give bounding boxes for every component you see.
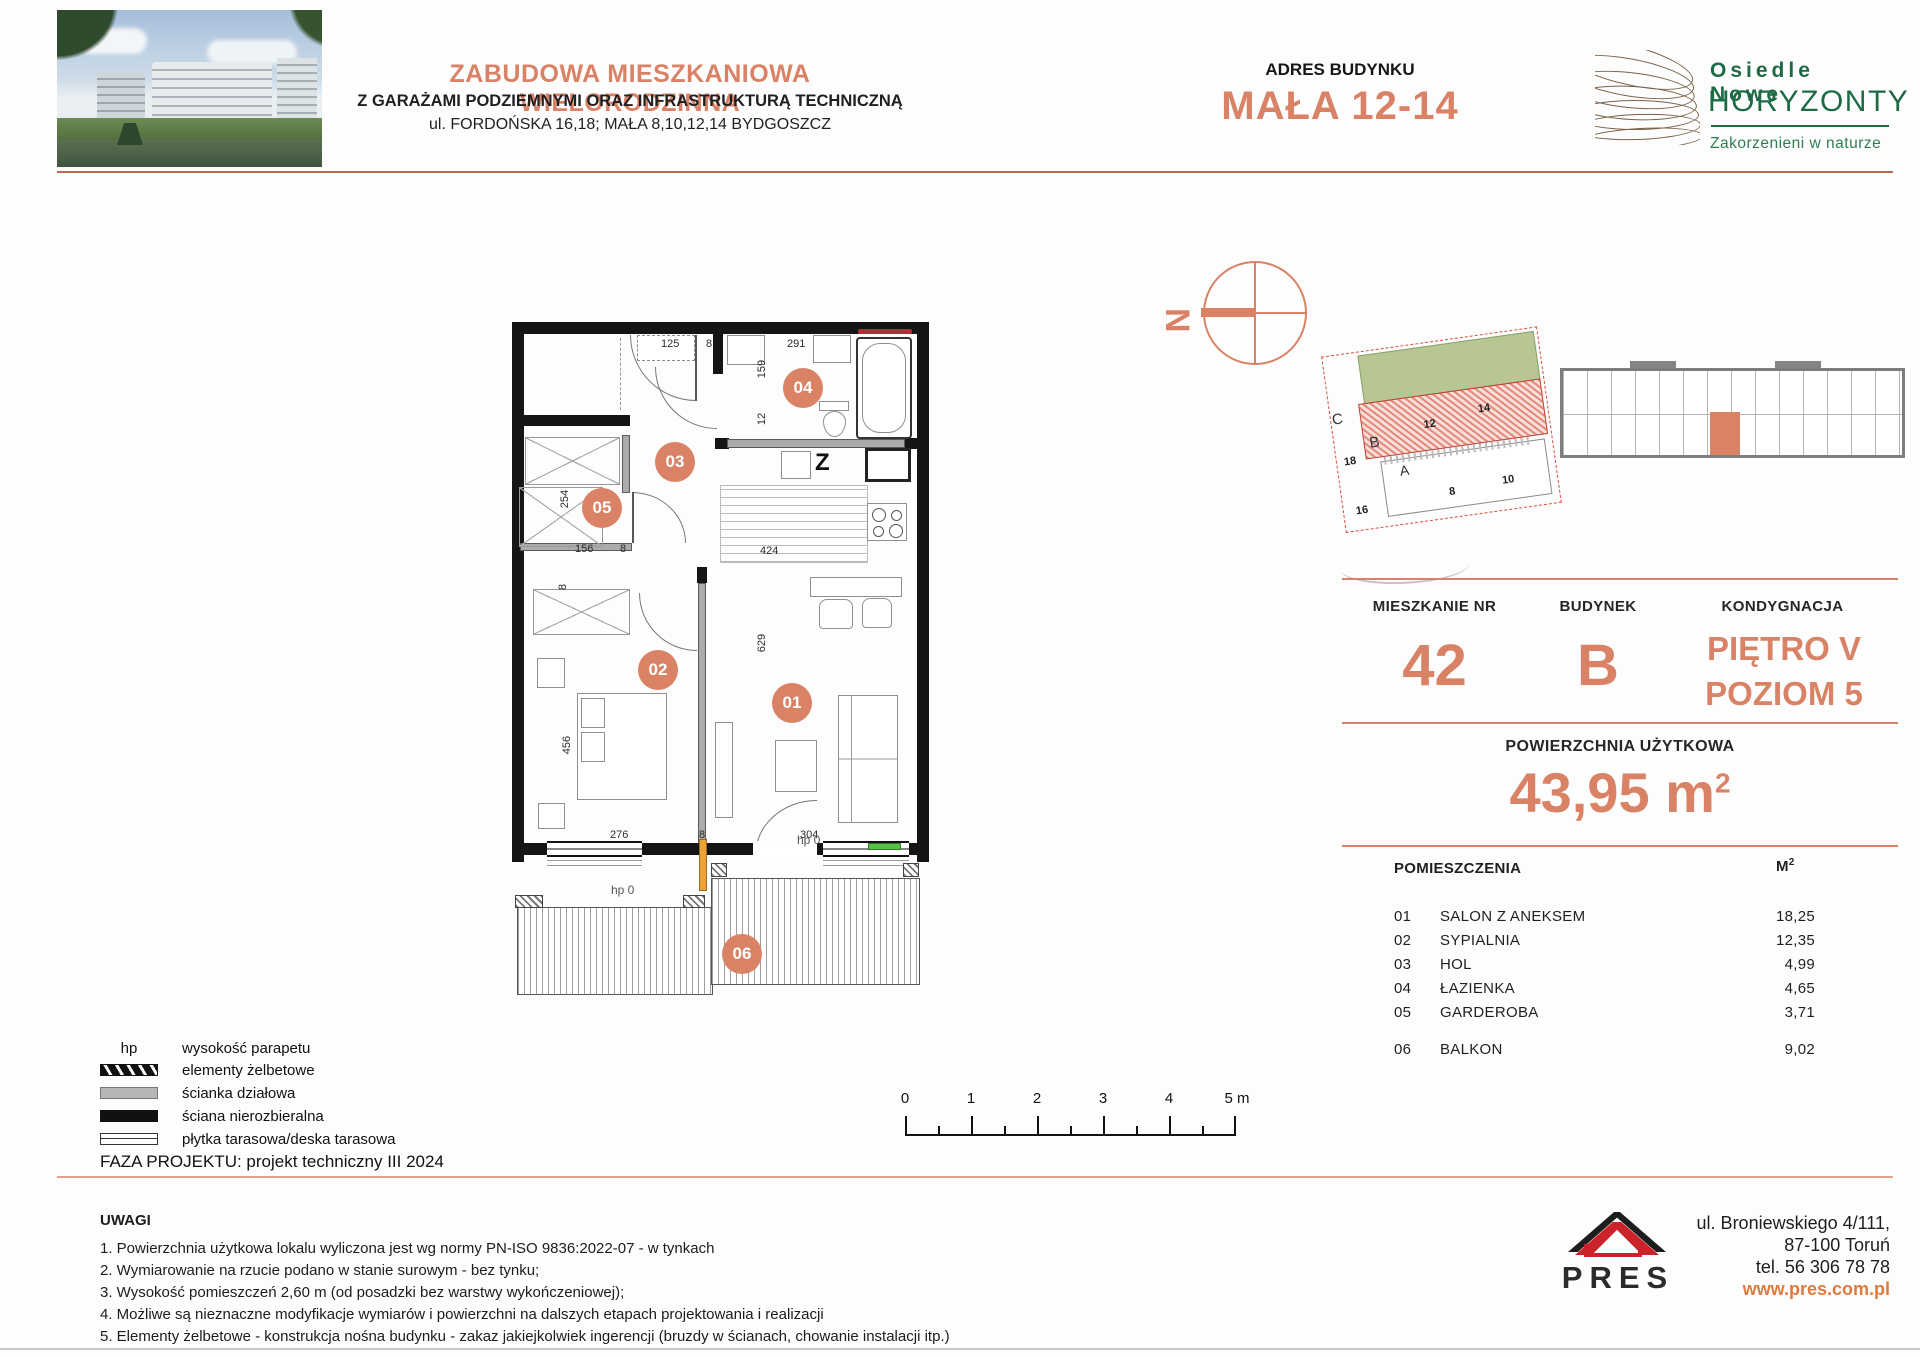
dim-label: 291 [787,338,805,350]
dim-label: 12 [740,413,784,425]
room-circle-02: 02 [638,650,678,690]
note-item: 3. Wysokość pomieszczeń 2,60 m (od posad… [100,1284,624,1301]
legend-label: ściana nierozbieralna [182,1108,324,1125]
room-row-name: GARDEROBA [1440,1004,1539,1021]
chair [862,598,892,628]
room-row-no: 04 [1394,980,1411,997]
door-leaf [632,492,634,543]
footer-address: ul. Broniewskiego 4/111, 87-100 Toruń te… [1620,1212,1890,1300]
footer-website-link: www.pres.com.pl [1620,1278,1890,1300]
logo-tagline: Zakorzenieni w naturze [1710,135,1895,153]
brand-logo: Osiedle Nowe HORYZONTY Zakorzenieni w na… [1595,45,1895,160]
wall [512,334,524,419]
room-row-no: 05 [1394,1004,1411,1021]
floor-plan: Z 01 02 03 [415,255,975,1045]
kitchen-sink-label: Z [815,449,830,477]
page-subtitle: Z GARAŻAMI PODZIEMNYMI ORAZ INFRASTRUKTU… [340,92,920,111]
kitchen-floor-stripes [720,485,868,563]
partition-wall [698,583,706,843]
unit-highlight [1710,412,1740,455]
room-row-area: 4,65 [1735,980,1815,997]
legend-swatch-deck [100,1133,158,1145]
footer-address-line3: tel. 56 306 78 78 [1620,1256,1890,1278]
room-circle-04: 04 [783,368,823,408]
notes-title: UWAGI [100,1212,151,1229]
door-arc [632,492,686,543]
room-row-name: SALON Z ANEKSEM [1440,908,1585,925]
room-row-name: BALKON [1440,1041,1503,1058]
dim-label: 156 [575,543,593,555]
stove [867,503,907,541]
site-label-c: C [1331,410,1344,428]
room-circle-05: 05 [582,488,622,528]
building-label: BUDYNEK [1538,598,1658,615]
dim-label: 629 [740,637,784,649]
note-item: 5. Elementy żelbetowe - konstrukcja nośn… [100,1328,950,1345]
room-row-no: 03 [1394,956,1411,973]
legend-swatch-gray [100,1087,158,1099]
building-value: B [1538,632,1658,699]
door-arc [655,367,717,429]
logo-divider [1711,125,1889,127]
legend-swatch-hatched [100,1064,158,1076]
compass: N [1155,255,1315,375]
wall [512,415,524,862]
footer-rule [57,1176,1893,1178]
balcony-deck [517,907,713,995]
note-item: 2. Wymiarowanie na rzucie podano w stani… [100,1262,539,1279]
dim-label: 276 [610,829,628,841]
toilet-bowl [823,411,846,437]
bathtub-inner [862,343,906,433]
tall-cabinet [865,448,911,482]
usable-area-number: 43,95 m [1509,761,1715,824]
tv-cabinet [715,722,733,818]
insulation-block [515,895,543,908]
building-address-label: ADRES BUDYNKU [1235,60,1445,80]
radiator [699,839,707,891]
scale-tick-label: 0 [891,1090,919,1107]
dim-label: 254 [543,493,587,505]
legend-label: wysokość parapetu [182,1040,310,1057]
usable-area-value: 43,95 m2 [1342,760,1898,825]
building-address: MAŁA 12-14 [1195,84,1485,129]
toilet-tank [819,401,849,411]
window-sill [547,860,642,866]
room-row-area: 9,02 [1735,1041,1815,1058]
apartment-card-page: ZABUDOWA MIESZKANIOWA WIELORODZINNA Z GA… [0,0,1920,1357]
site-label-12: 12 [1423,417,1437,431]
scale-tick-label: 3 [1089,1090,1117,1107]
nightstand [537,658,565,688]
header-photo [57,10,322,167]
footer-address-line1: ul. Broniewskiego 4/111, [1620,1212,1890,1234]
insulation-block [903,863,919,877]
site-label-16: 16 [1355,504,1369,518]
bottom-rule [0,1348,1920,1350]
rooms-header: POMIESZCZENIA [1394,860,1521,877]
footer-address-line2: 87-100 Toruń [1620,1234,1890,1256]
partition-wall [622,435,630,493]
towel-radiator [858,329,912,334]
washing-machine [813,335,851,363]
room-circle-01: 01 [772,683,812,723]
dim-label: 424 [760,545,778,557]
room-row-name: ŁAZIENKA [1440,980,1515,997]
site-label-a: A [1399,462,1410,479]
window [547,841,642,857]
compass-north-label: N [1160,297,1199,333]
scale-tick-label: 5 m [1217,1090,1257,1107]
wall [512,415,630,426]
floor-value-line1: PIĘTRO V [1684,630,1884,668]
floor-label: KONDYGNACJA [1690,598,1875,615]
dining-table [810,577,902,597]
rooms-unit-header: M2 [1776,857,1795,875]
scale-tick-label: 2 [1023,1090,1051,1107]
panel-divider [1342,722,1898,724]
apartment-number-value: 42 [1352,632,1517,699]
dim-label: 159 [740,363,784,375]
chair [819,599,853,629]
coffee-table [775,740,817,792]
site-label-14: 14 [1477,402,1491,416]
wall [917,322,929,862]
dim-label: hp 0 [797,833,820,847]
building-floor-plate [1560,368,1905,458]
entrance-dashed-line [620,338,621,410]
panel-divider [1342,578,1898,580]
nightstand [538,803,565,829]
kitchen-sink [781,451,811,479]
electric-box [868,843,901,850]
room-row-no: 06 [1394,1041,1411,1058]
door-arc [639,593,697,651]
legend-label: elementy żelbetowe [182,1062,315,1079]
dim-label: hp 0 [611,883,634,897]
logo-leaf-icon [1595,50,1700,145]
dim-label: 456 [545,739,589,751]
room-row-area: 12,35 [1735,932,1815,949]
legend-hp-symbol: hp [100,1040,158,1057]
site-label-10: 10 [1501,473,1515,487]
legend-label: płytka tarasowa/deska tarasowa [182,1131,395,1148]
partition-wall [727,439,905,448]
room-row-name: SYPIALNIA [1440,932,1520,949]
legend-label: ścianka działowa [182,1085,295,1102]
page-address-line: ul. FORDOŃSKA 16,18; MAŁA 8,10,12,14 BYD… [340,116,920,134]
project-phase: FAZA PROJEKTU: projekt techniczny III 20… [100,1152,444,1172]
wall [697,567,707,583]
room-row-area: 3,71 [1735,1004,1815,1021]
rooms-unit: M [1776,858,1789,875]
header-rule [57,171,1893,173]
window-sill [823,860,909,866]
usable-area-sup: 2 [1715,767,1731,798]
room-circle-03: 03 [655,442,695,482]
usable-area-label: POWIERZCHNIA UŻYTKOWA [1342,738,1898,756]
room-row-area: 18,25 [1735,908,1815,925]
sofa [838,695,898,823]
dim-label: 8 [541,581,585,593]
insulation-block [683,895,705,908]
dim-label: 8 [620,543,626,555]
site-label-18: 18 [1343,455,1357,469]
dim-label: 8 [699,829,705,841]
site-label-b: B [1368,433,1380,451]
room-circle-06: 06 [722,934,762,974]
apartment-number-label: MIESZKANIE NR [1352,598,1517,615]
floor-value-line2: POZIOM 5 [1684,675,1884,713]
legend-swatch-black [100,1110,158,1122]
scale-bar: 0 1 2 3 4 5 m [905,1090,1250,1136]
scale-tick-label: 1 [957,1090,985,1107]
logo-line2: HORYZONTY [1708,85,1898,119]
insulation-block [711,863,727,877]
note-item: 1. Powierzchnia użytkowa lokalu wyliczon… [100,1240,714,1257]
dresser [533,589,630,635]
room-row-name: HOL [1440,956,1472,973]
room-row-no: 02 [1394,932,1411,949]
scale-tick-label: 4 [1155,1090,1183,1107]
site-plan: B 12 14 A 8 10 C 18 16 [1335,330,1570,590]
room-row-no: 01 [1394,908,1411,925]
room-row-area: 4,99 [1735,956,1815,973]
rooms-unit-sup: 2 [1789,857,1795,868]
wardrobe [525,437,620,485]
pillow [581,698,605,728]
dim-label: 8 [706,338,712,350]
panel-divider [1342,845,1898,847]
note-item: 4. Możliwe są nieznaczne modyfikacje wym… [100,1306,824,1323]
dim-label: 125 [661,338,679,350]
